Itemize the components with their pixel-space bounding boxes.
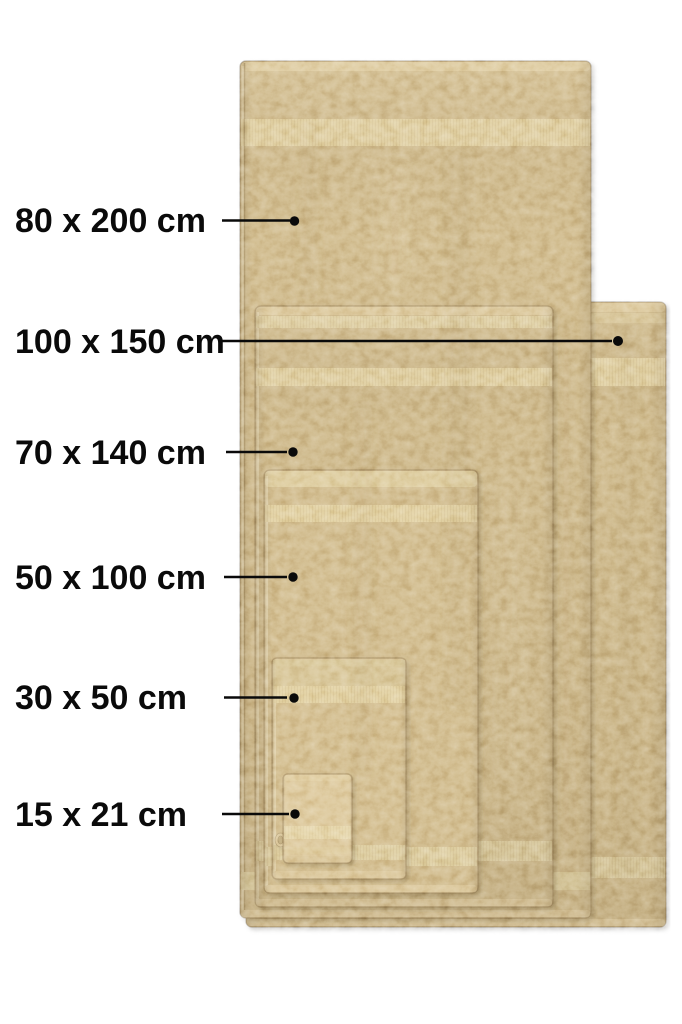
svg-text:50 x 100 cm: 50 x 100 cm xyxy=(15,559,206,597)
svg-text:15 x 21 cm: 15 x 21 cm xyxy=(15,796,187,834)
svg-text:80 x 200 cm: 80 x 200 cm xyxy=(15,202,206,240)
svg-text:70 x 140 cm: 70 x 140 cm xyxy=(15,434,206,472)
svg-text:30 x 50 cm: 30 x 50 cm xyxy=(15,679,187,717)
svg-text:100 x 150 cm: 100 x 150 cm xyxy=(15,323,225,361)
